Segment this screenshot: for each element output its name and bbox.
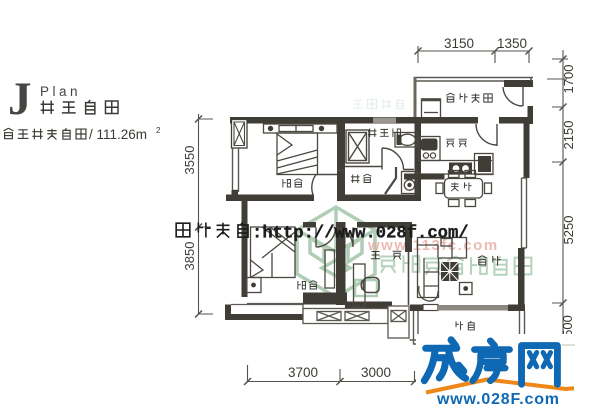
svg-text:3550: 3550 [182, 146, 197, 175]
svg-text:/ 111.26m: / 111.26m [89, 127, 147, 142]
svg-text:Plan: Plan [40, 84, 81, 99]
svg-text:500: 500 [560, 315, 575, 337]
svg-text:3700: 3700 [288, 365, 318, 380]
svg-text:J: J [8, 73, 32, 125]
svg-text:2150: 2150 [561, 121, 576, 150]
svg-text::http://www.028f.com/: :http://www.028f.com/ [252, 225, 469, 244]
svg-text:3150: 3150 [444, 36, 474, 51]
svg-text:1700: 1700 [561, 65, 576, 94]
svg-text:2: 2 [156, 126, 161, 135]
svg-text:3000: 3000 [361, 365, 391, 380]
svg-text:1350: 1350 [497, 36, 527, 51]
svg-text:5250: 5250 [561, 216, 576, 245]
svg-text:www.028F.com: www.028F.com [436, 391, 560, 408]
svg-text:3850: 3850 [182, 242, 197, 271]
